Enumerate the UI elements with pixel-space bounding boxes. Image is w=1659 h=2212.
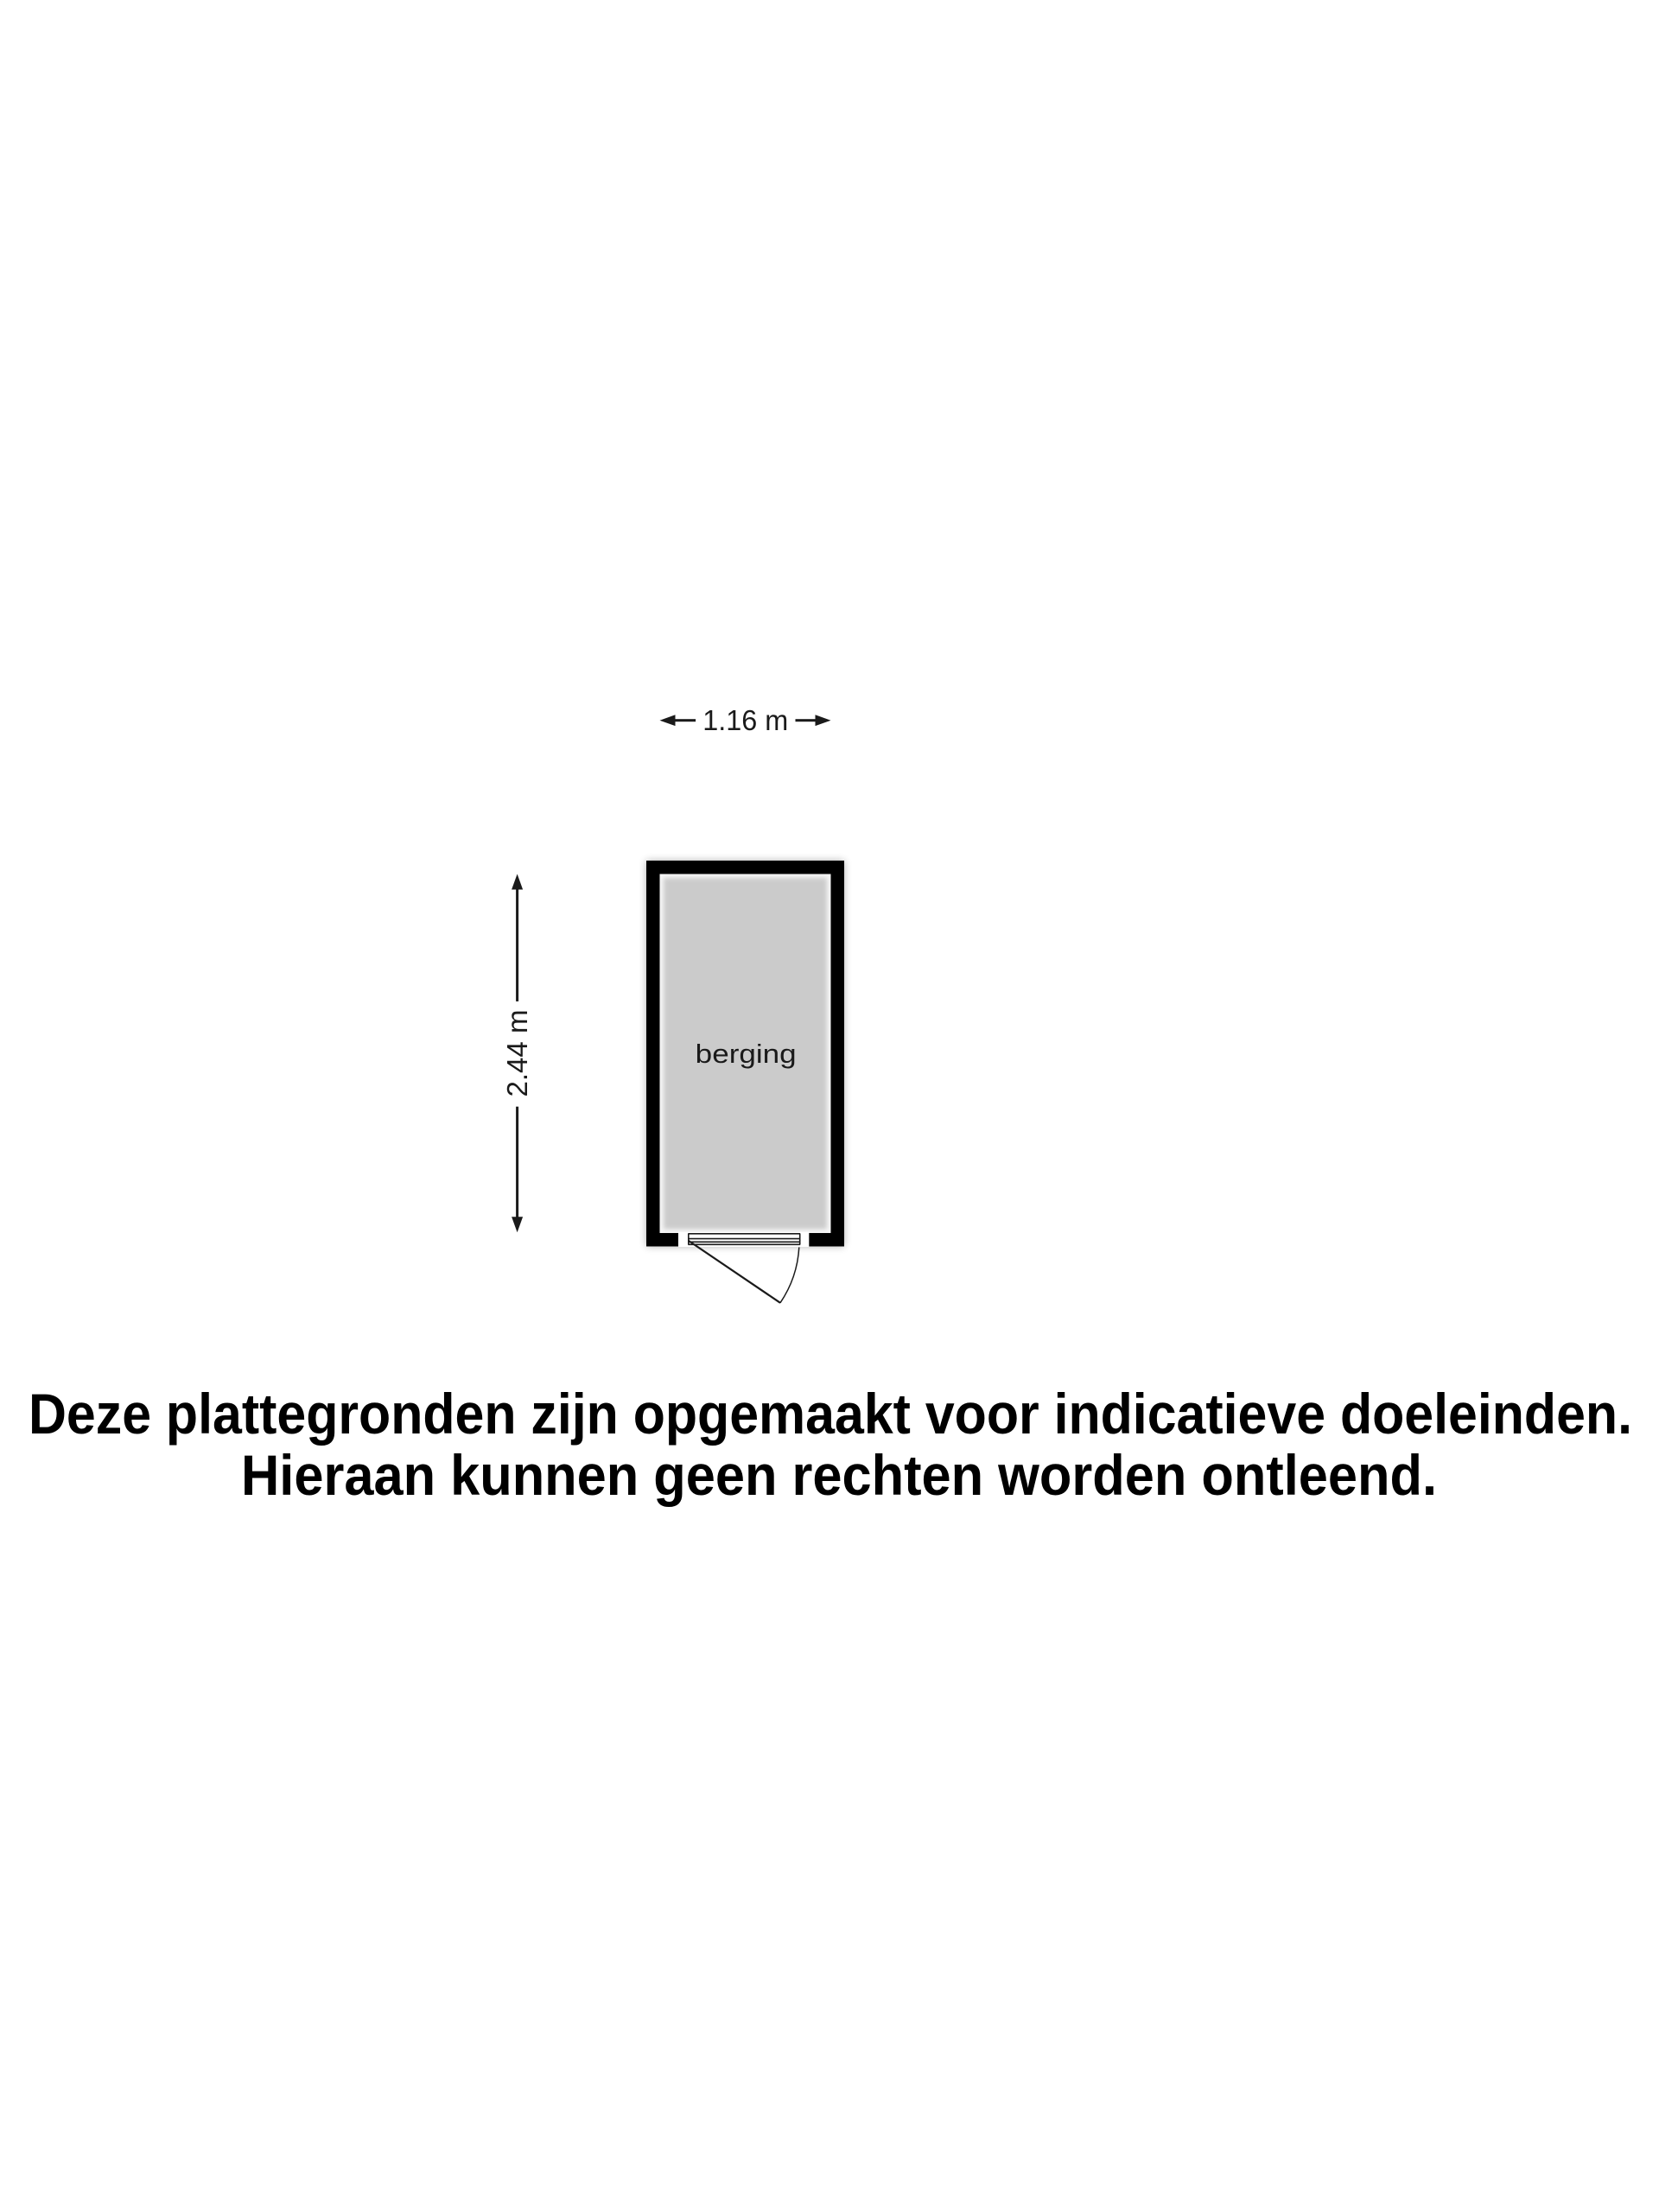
svg-text:1.16 m: 1.16 m: [702, 704, 788, 736]
svg-text:2.44 m: 2.44 m: [501, 1010, 533, 1097]
svg-text:Hieraan kunnen geen rechten wo: Hieraan kunnen geen rechten worden ontle…: [241, 1443, 1437, 1507]
svg-text:Deze plattegronden zijn opgema: Deze plattegronden zijn opgemaakt voor i…: [29, 1382, 1632, 1446]
svg-text:berging: berging: [696, 1039, 797, 1069]
